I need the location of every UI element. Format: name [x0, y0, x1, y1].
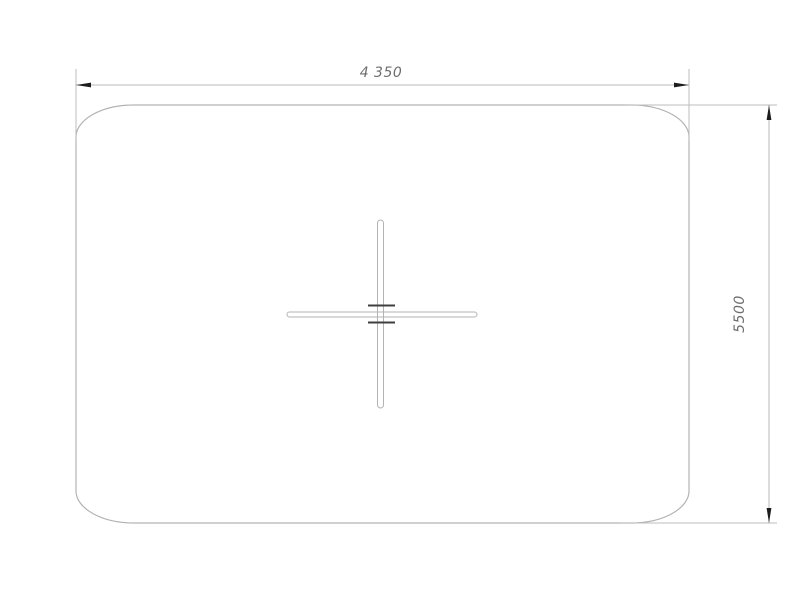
height-dim-arrow-up-icon: [767, 105, 772, 120]
center-horizontal-slot: [287, 312, 477, 317]
panel-outline: [76, 105, 689, 523]
drawing-canvas[interactable]: 4 350 5500: [0, 0, 800, 600]
center-vertical-slot: [378, 220, 384, 408]
width-dimension-label: 4 350: [360, 65, 403, 81]
drawing-viewport: 4 350 5500: [0, 0, 800, 600]
height-dimension-label: 5500: [732, 295, 748, 333]
width-dim-arrow-left-icon: [76, 83, 91, 88]
width-dim-arrow-right-icon: [674, 83, 689, 88]
height-dim-arrow-down-icon: [767, 508, 772, 523]
